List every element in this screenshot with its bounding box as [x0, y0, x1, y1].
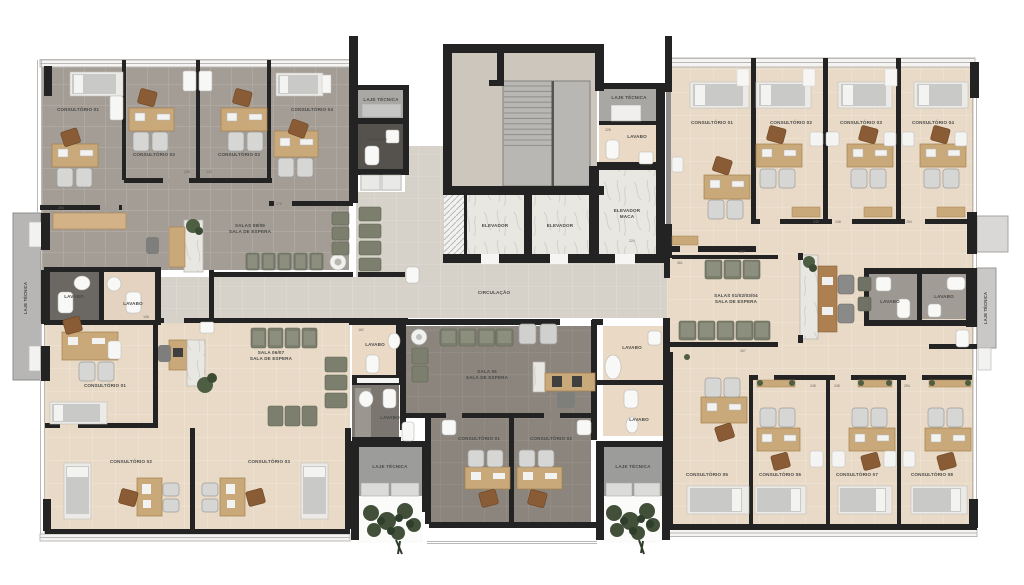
- svg-text:ELEVADOR: ELEVADOR: [482, 223, 509, 228]
- svg-text:SALA DE ESPERA: SALA DE ESPERA: [466, 375, 509, 380]
- svg-text:228: 228: [605, 128, 611, 132]
- svg-text:SALA DE ESPERA: SALA DE ESPERA: [715, 299, 758, 304]
- svg-text:LAVABO: LAVABO: [880, 299, 900, 304]
- svg-text:CONSULTÓRIO 03: CONSULTÓRIO 03: [248, 457, 290, 464]
- svg-text:LAVABO: LAVABO: [123, 301, 143, 306]
- svg-text:LAJE TÉCNICA: LAJE TÉCNICA: [363, 95, 399, 102]
- svg-text:254: 254: [904, 384, 910, 388]
- svg-text:LAJE TÉCNICA: LAJE TÉCNICA: [611, 93, 647, 100]
- svg-text:248: 248: [834, 384, 840, 388]
- svg-text:SALAS 01/02/03/04: SALAS 01/02/03/04: [714, 293, 758, 298]
- svg-text:254: 254: [58, 206, 64, 210]
- svg-text:248: 248: [835, 220, 841, 224]
- svg-text:254: 254: [906, 220, 912, 224]
- svg-text:SALA DE ESPERA: SALA DE ESPERA: [229, 229, 272, 234]
- svg-text:ELEVADOR: ELEVADOR: [614, 208, 641, 213]
- svg-text:ELEVADOR: ELEVADOR: [547, 223, 574, 228]
- svg-text:SALAS 08/09: SALAS 08/09: [235, 223, 265, 228]
- svg-text:CONSULTÓRIO 02: CONSULTÓRIO 02: [133, 150, 175, 157]
- svg-text:CONSULTÓRIO 01: CONSULTÓRIO 01: [57, 105, 99, 112]
- svg-text:SALA 05: SALA 05: [477, 369, 497, 374]
- svg-text:SALA 06/07: SALA 06/07: [258, 350, 285, 355]
- svg-text:MACA: MACA: [620, 214, 635, 219]
- svg-text:CONSULTÓRIO 03: CONSULTÓRIO 03: [840, 118, 882, 125]
- svg-text:CONSULTÓRIO 01: CONSULTÓRIO 01: [691, 118, 733, 125]
- svg-text:LAJE TÉCNICA: LAJE TÉCNICA: [372, 462, 408, 469]
- svg-text:240: 240: [206, 170, 212, 174]
- svg-text:248: 248: [810, 384, 816, 388]
- svg-text:CONSULTÓRIO 02: CONSULTÓRIO 02: [110, 457, 152, 464]
- svg-text:228: 228: [184, 170, 190, 174]
- svg-text:267: 267: [740, 349, 746, 353]
- svg-text:CONSULTÓRIO 01: CONSULTÓRIO 01: [458, 434, 500, 441]
- svg-text:LAVABO: LAVABO: [629, 417, 649, 422]
- svg-text:CONSULTÓRIO 02: CONSULTÓRIO 02: [770, 118, 812, 125]
- svg-text:LAVABO: LAVABO: [64, 294, 84, 299]
- svg-text:508: 508: [310, 328, 316, 332]
- svg-text:CONSULTÓRIO 03: CONSULTÓRIO 03: [218, 150, 260, 157]
- svg-text:LAJE TÉCNICA: LAJE TÉCNICA: [615, 462, 651, 469]
- svg-text:LAJE TÉCNICA: LAJE TÉCNICA: [23, 282, 28, 314]
- svg-text:361: 361: [677, 261, 683, 265]
- svg-text:LAVABO: LAVABO: [380, 415, 400, 420]
- svg-text:CONSULTÓRIO 04: CONSULTÓRIO 04: [291, 105, 333, 112]
- svg-text:267: 267: [739, 250, 745, 254]
- svg-text:CIRCULAÇÃO: CIRCULAÇÃO: [478, 289, 511, 295]
- svg-text:270: 270: [276, 202, 282, 206]
- svg-text:CONSULTÓRIO 07: CONSULTÓRIO 07: [836, 470, 878, 477]
- svg-text:LAVABO: LAVABO: [627, 134, 647, 139]
- svg-text:LAVABO: LAVABO: [365, 342, 385, 347]
- svg-text:SALA DE ESPERA: SALA DE ESPERA: [250, 356, 293, 361]
- svg-text:CONSULTÓRIO 06: CONSULTÓRIO 06: [759, 470, 801, 477]
- svg-text:LAVABO: LAVABO: [622, 345, 642, 350]
- svg-text:LAVABO: LAVABO: [934, 294, 954, 299]
- svg-text:CONSULTÓRIO 08: CONSULTÓRIO 08: [911, 470, 953, 477]
- svg-text:CONSULTÓRIO 04: CONSULTÓRIO 04: [912, 118, 954, 125]
- svg-text:240: 240: [813, 220, 819, 224]
- svg-text:CONSULTÓRIO 02: CONSULTÓRIO 02: [530, 434, 572, 441]
- svg-text:CONSULTÓRIO 05: CONSULTÓRIO 05: [686, 470, 728, 477]
- svg-text:146: 146: [143, 315, 149, 319]
- svg-text:LAVABO: LAVABO: [367, 137, 387, 142]
- svg-text:162: 162: [358, 328, 364, 332]
- svg-text:LAJE TÉCNICA: LAJE TÉCNICA: [983, 292, 988, 324]
- svg-text:CONSULTÓRIO 01: CONSULTÓRIO 01: [84, 381, 126, 388]
- svg-text:224: 224: [629, 239, 635, 243]
